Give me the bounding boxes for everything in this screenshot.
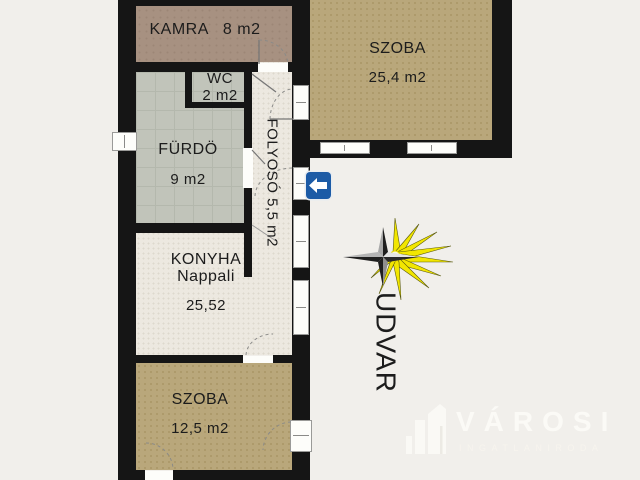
upper-room-label: SZOBA (330, 40, 465, 57)
brand-subtitle: INGATLANIRODA (459, 443, 603, 453)
lower-room-label: SZOBA (140, 391, 260, 408)
upper-room-area: 25,4 m2 (330, 69, 465, 86)
entrance-arrow-icon (306, 172, 331, 199)
brand-name: VÁROSI (456, 406, 617, 438)
floor-plan: KAMRA8 m2 WC 2 m2 FÜRDÖ 9 m2 FOLYOSÓ 5,5… (0, 0, 640, 480)
compass-sun-icon (335, 214, 465, 304)
compass-star (343, 227, 419, 287)
kitchen-label: KONYHA Nappali (146, 251, 266, 285)
wc-label: WC 2 m2 (196, 70, 244, 104)
lower-room-area: 12,5 m2 (140, 420, 260, 437)
bathroom-area: 9 m2 (138, 171, 238, 188)
left-arrow-glyph (309, 178, 328, 193)
brand-building-icon (404, 396, 454, 466)
bathroom-label: FÜRDÖ (138, 141, 238, 158)
kitchen-area: 25,52 (146, 297, 266, 314)
pantry-label: KAMRA8 m2 (130, 21, 280, 38)
corridor-label: FOLYOSÓ 5,5 m2 (264, 119, 281, 239)
